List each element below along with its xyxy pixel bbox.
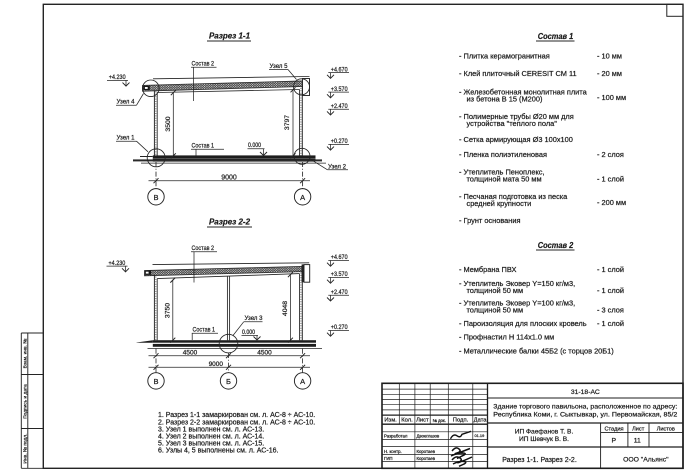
svg-text:- 20 мм: - 20 мм <box>597 69 622 78</box>
svg-text:- Грунт основания: - Грунт основания <box>459 216 521 225</box>
svg-text:Коротаев: Коротаев <box>417 449 436 454</box>
svg-text:- Плитка керамогранитная: - Плитка керамогранитная <box>459 52 550 61</box>
svg-text:- 1 слой: - 1 слой <box>597 265 624 274</box>
svg-text:4500: 4500 <box>183 349 198 356</box>
svg-text:3797: 3797 <box>284 115 291 130</box>
svg-text:Разрез 1-1: Разрез 1-1 <box>209 32 251 41</box>
svg-text:31-18-АС: 31-18-АС <box>571 389 600 396</box>
svg-text:3. Узел 1 выполнен см. л. АС-1: 3. Узел 1 выполнен см. л. АС-13. <box>158 426 264 433</box>
svg-text:Здание торгового павильона, ра: Здание торгового павильона, расположенно… <box>493 404 677 411</box>
svg-text:толщиной 50 мм: толщиной 50 мм <box>467 286 524 295</box>
svg-text:Подп.: Подп. <box>453 418 469 424</box>
svg-text:- 200 мм: - 200 мм <box>597 198 626 207</box>
svg-text:Узел 5: Узел 5 <box>270 63 288 70</box>
svg-text:Взам. инв. №: Взам. инв. № <box>22 339 28 369</box>
svg-text:ИП Фаефанов Т. В.: ИП Фаефанов Т. В. <box>515 428 574 435</box>
svg-text:Двоеглазов: Двоеглазов <box>417 433 441 438</box>
svg-text:Разрез 2-2: Разрез 2-2 <box>209 218 251 227</box>
svg-text:А: А <box>300 193 305 202</box>
svg-text:Состав 2: Состав 2 <box>192 245 215 252</box>
svg-text:ИП Шевчук В. В.: ИП Шевчук В. В. <box>519 436 569 443</box>
svg-text:В: В <box>153 193 158 202</box>
svg-text:0.000: 0.000 <box>248 143 262 149</box>
svg-text:- Профнастил Н 114х1.0 мм: - Профнастил Н 114х1.0 мм <box>459 333 554 342</box>
svg-text:Лист: Лист <box>632 426 645 432</box>
svg-text:Дата: Дата <box>474 418 488 424</box>
svg-text:Состав 1: Состав 1 <box>192 143 215 150</box>
svg-text:9000: 9000 <box>221 174 237 181</box>
svg-text:толщиной 50 мм: толщиной 50 мм <box>467 306 524 315</box>
svg-text:Узел 1: Узел 1 <box>117 135 135 142</box>
svg-text:4500: 4500 <box>257 349 272 356</box>
svg-text:Разрез 1-1. Разрез 2-2.: Разрез 1-1. Разрез 2-2. <box>502 457 577 464</box>
svg-text:01.19: 01.19 <box>475 433 485 438</box>
svg-text:Состав 2: Состав 2 <box>192 61 215 68</box>
svg-text:толщиной мата 50 мм: толщиной мата 50 мм <box>467 175 542 184</box>
svg-text:устройства "теплого пола": устройства "теплого пола" <box>467 119 558 128</box>
svg-text:- Сетка армирующая Ø3 100х100: - Сетка армирующая Ø3 100х100 <box>459 135 573 144</box>
svg-text:3500: 3500 <box>165 116 172 131</box>
svg-text:- 1 слой: - 1 слой <box>597 319 624 328</box>
svg-text:1. Разрез 1-1 замаркирован см.: 1. Разрез 1-1 замаркирован см. л. АС-8 ÷… <box>158 412 315 419</box>
svg-text:Узел 2: Узел 2 <box>328 163 346 170</box>
svg-text:11: 11 <box>634 437 641 444</box>
svg-text:4048: 4048 <box>282 301 289 316</box>
svg-text:5. Узел 3 выполнен см. л. АС-1: 5. Узел 3 выполнен см. л. АС-15. <box>158 441 264 448</box>
svg-text:Инв. № подл.: Инв. № подл. <box>22 434 28 464</box>
svg-text:Р: Р <box>612 437 617 444</box>
svg-text:Узел 4: Узел 4 <box>117 99 135 106</box>
svg-text:из бетона В 15 (М200): из бетона В 15 (М200) <box>467 95 543 104</box>
svg-text:- 100 мм: - 100 мм <box>597 93 626 102</box>
svg-text:Состав 1: Состав 1 <box>193 327 216 334</box>
svg-text:А: А <box>300 377 305 386</box>
svg-text:- 10 мм: - 10 мм <box>597 52 622 61</box>
svg-text:№ док.: № док. <box>432 418 445 423</box>
svg-text:- 1 слой: - 1 слой <box>597 286 624 295</box>
svg-text:Лист: Лист <box>416 418 429 424</box>
svg-text:Подпись и дата: Подпись и дата <box>22 384 28 419</box>
svg-text:Н. контр.: Н. контр. <box>384 449 402 454</box>
svg-text:- 2 слоя: - 2 слоя <box>597 150 624 159</box>
svg-text:ГИП: ГИП <box>384 456 393 461</box>
svg-text:2. Разрез 2-2 замаркирован см.: 2. Разрез 2-2 замаркирован см. л. АС-8 ÷… <box>158 419 315 426</box>
svg-text:Узел 3: Узел 3 <box>245 315 263 322</box>
svg-text:6. Узлы 4, 5 выполнены см. л.: 6. Узлы 4, 5 выполнены см. л. АС-16. <box>158 448 278 455</box>
svg-text:Коротаев: Коротаев <box>417 456 436 461</box>
svg-text:- Пароизоляция для плоских кро: - Пароизоляция для плоских кровель <box>459 319 587 328</box>
svg-text:Разработал: Разработал <box>384 433 408 438</box>
svg-text:- Металлические балки 45Б2 (с: - Металлические балки 45Б2 (с торцов 20Б… <box>459 346 614 355</box>
svg-text:Б: Б <box>226 377 231 386</box>
svg-text:0.000: 0.000 <box>242 330 256 336</box>
svg-text:Состав 2: Состав 2 <box>538 240 574 250</box>
svg-text:- 1 слой: - 1 слой <box>597 175 624 184</box>
svg-text:Изм.: Изм. <box>384 418 397 424</box>
svg-text:9000: 9000 <box>209 361 224 368</box>
svg-text:В: В <box>153 377 158 386</box>
svg-text:Состав 1: Состав 1 <box>538 31 574 41</box>
svg-text:3750: 3750 <box>164 303 171 318</box>
svg-text:средней крупности: средней крупности <box>467 199 532 208</box>
svg-text:Стадия: Стадия <box>604 426 623 432</box>
svg-text:Республика Коми, г. Сыктывкар,: Республика Коми, г. Сыктывкар, ул. Перво… <box>493 410 677 418</box>
svg-text:- Мембрана ПВХ: - Мембрана ПВХ <box>459 265 516 274</box>
svg-text:Кол.: Кол. <box>401 418 413 424</box>
svg-text:- Клей плиточный CERESIT СМ 11: - Клей плиточный CERESIT СМ 11 <box>459 69 577 78</box>
svg-text:- Пленка полиэтиленовая: - Пленка полиэтиленовая <box>459 150 547 159</box>
svg-text:Листов: Листов <box>657 426 675 432</box>
svg-text:4. Узел 2 выполнен см. л. АС-1: 4. Узел 2 выполнен см. л. АС-14. <box>158 434 264 441</box>
svg-text:ООО "Альянс": ООО "Альянс" <box>623 456 669 463</box>
svg-text:- 3 слоя: - 3 слоя <box>597 306 624 315</box>
